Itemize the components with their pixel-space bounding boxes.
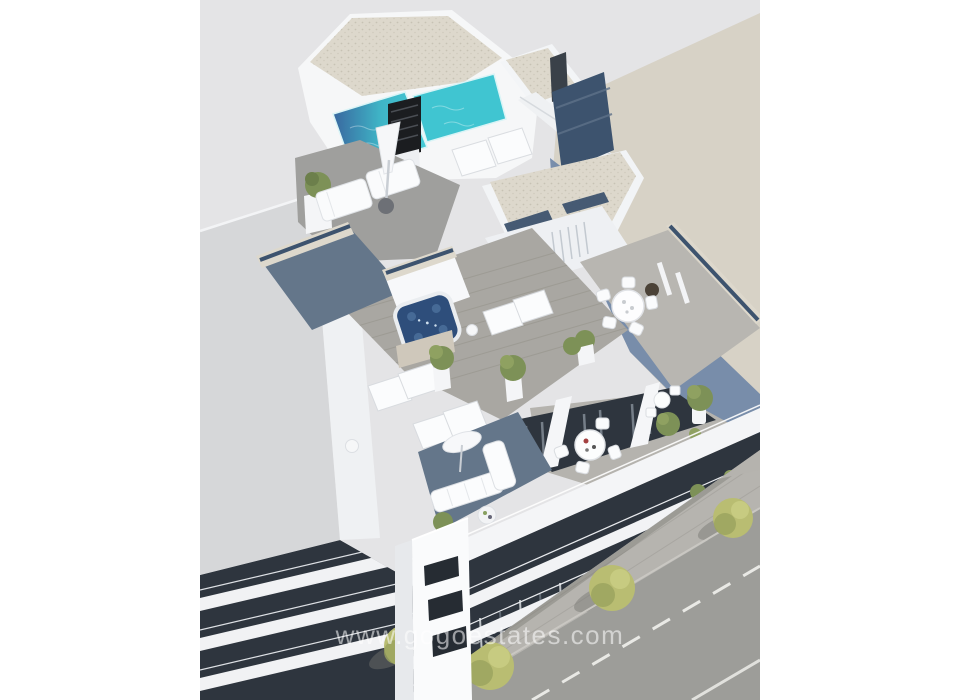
tree — [713, 498, 753, 538]
dining-table — [612, 290, 644, 322]
side-table — [346, 440, 359, 453]
render-scene — [200, 0, 760, 700]
corner-pillar — [395, 518, 472, 700]
side-table — [467, 325, 478, 336]
sphere-plant — [645, 283, 659, 297]
architectural-render-page: www.gogoestates.com — [0, 0, 960, 700]
plant-shade — [305, 172, 319, 186]
round-table — [575, 430, 605, 460]
render-image: www.gogoestates.com — [200, 0, 760, 700]
tree — [589, 565, 635, 611]
tray-table — [478, 506, 496, 524]
